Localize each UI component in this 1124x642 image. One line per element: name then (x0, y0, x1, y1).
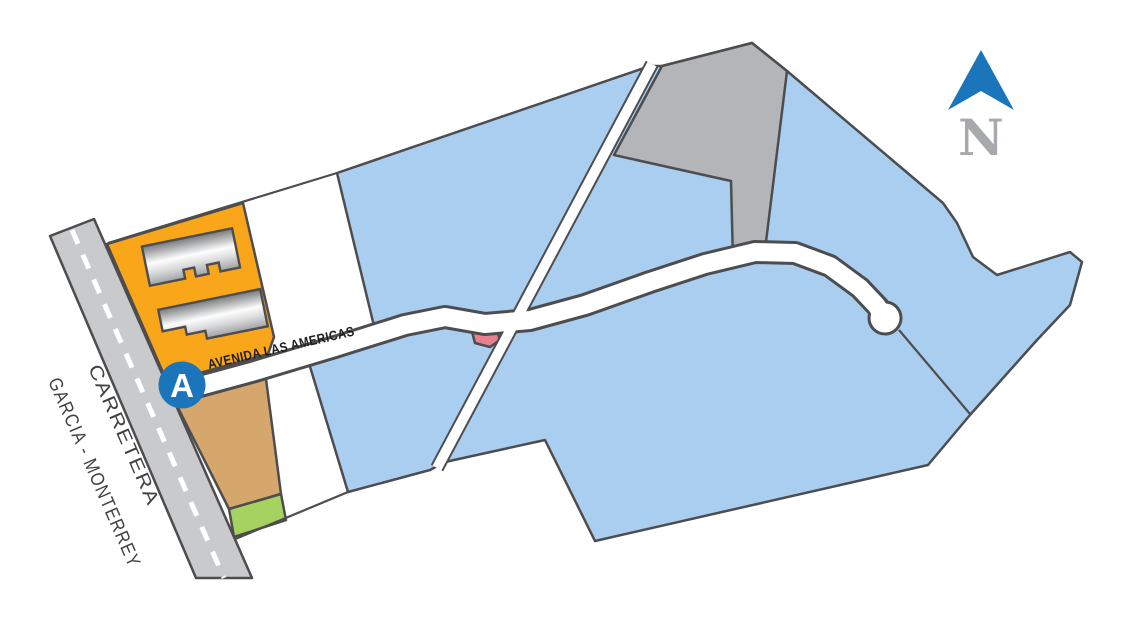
site-plan-map: CARRETERA GARCIA - MONTERREY AVENIDA LAS… (0, 0, 1124, 642)
marker-a-letter: A (170, 367, 194, 404)
north-compass: N (948, 50, 1014, 167)
marker-a: A (159, 362, 206, 409)
north-letter: N (958, 108, 1004, 167)
north-arrow-icon (948, 50, 1014, 110)
